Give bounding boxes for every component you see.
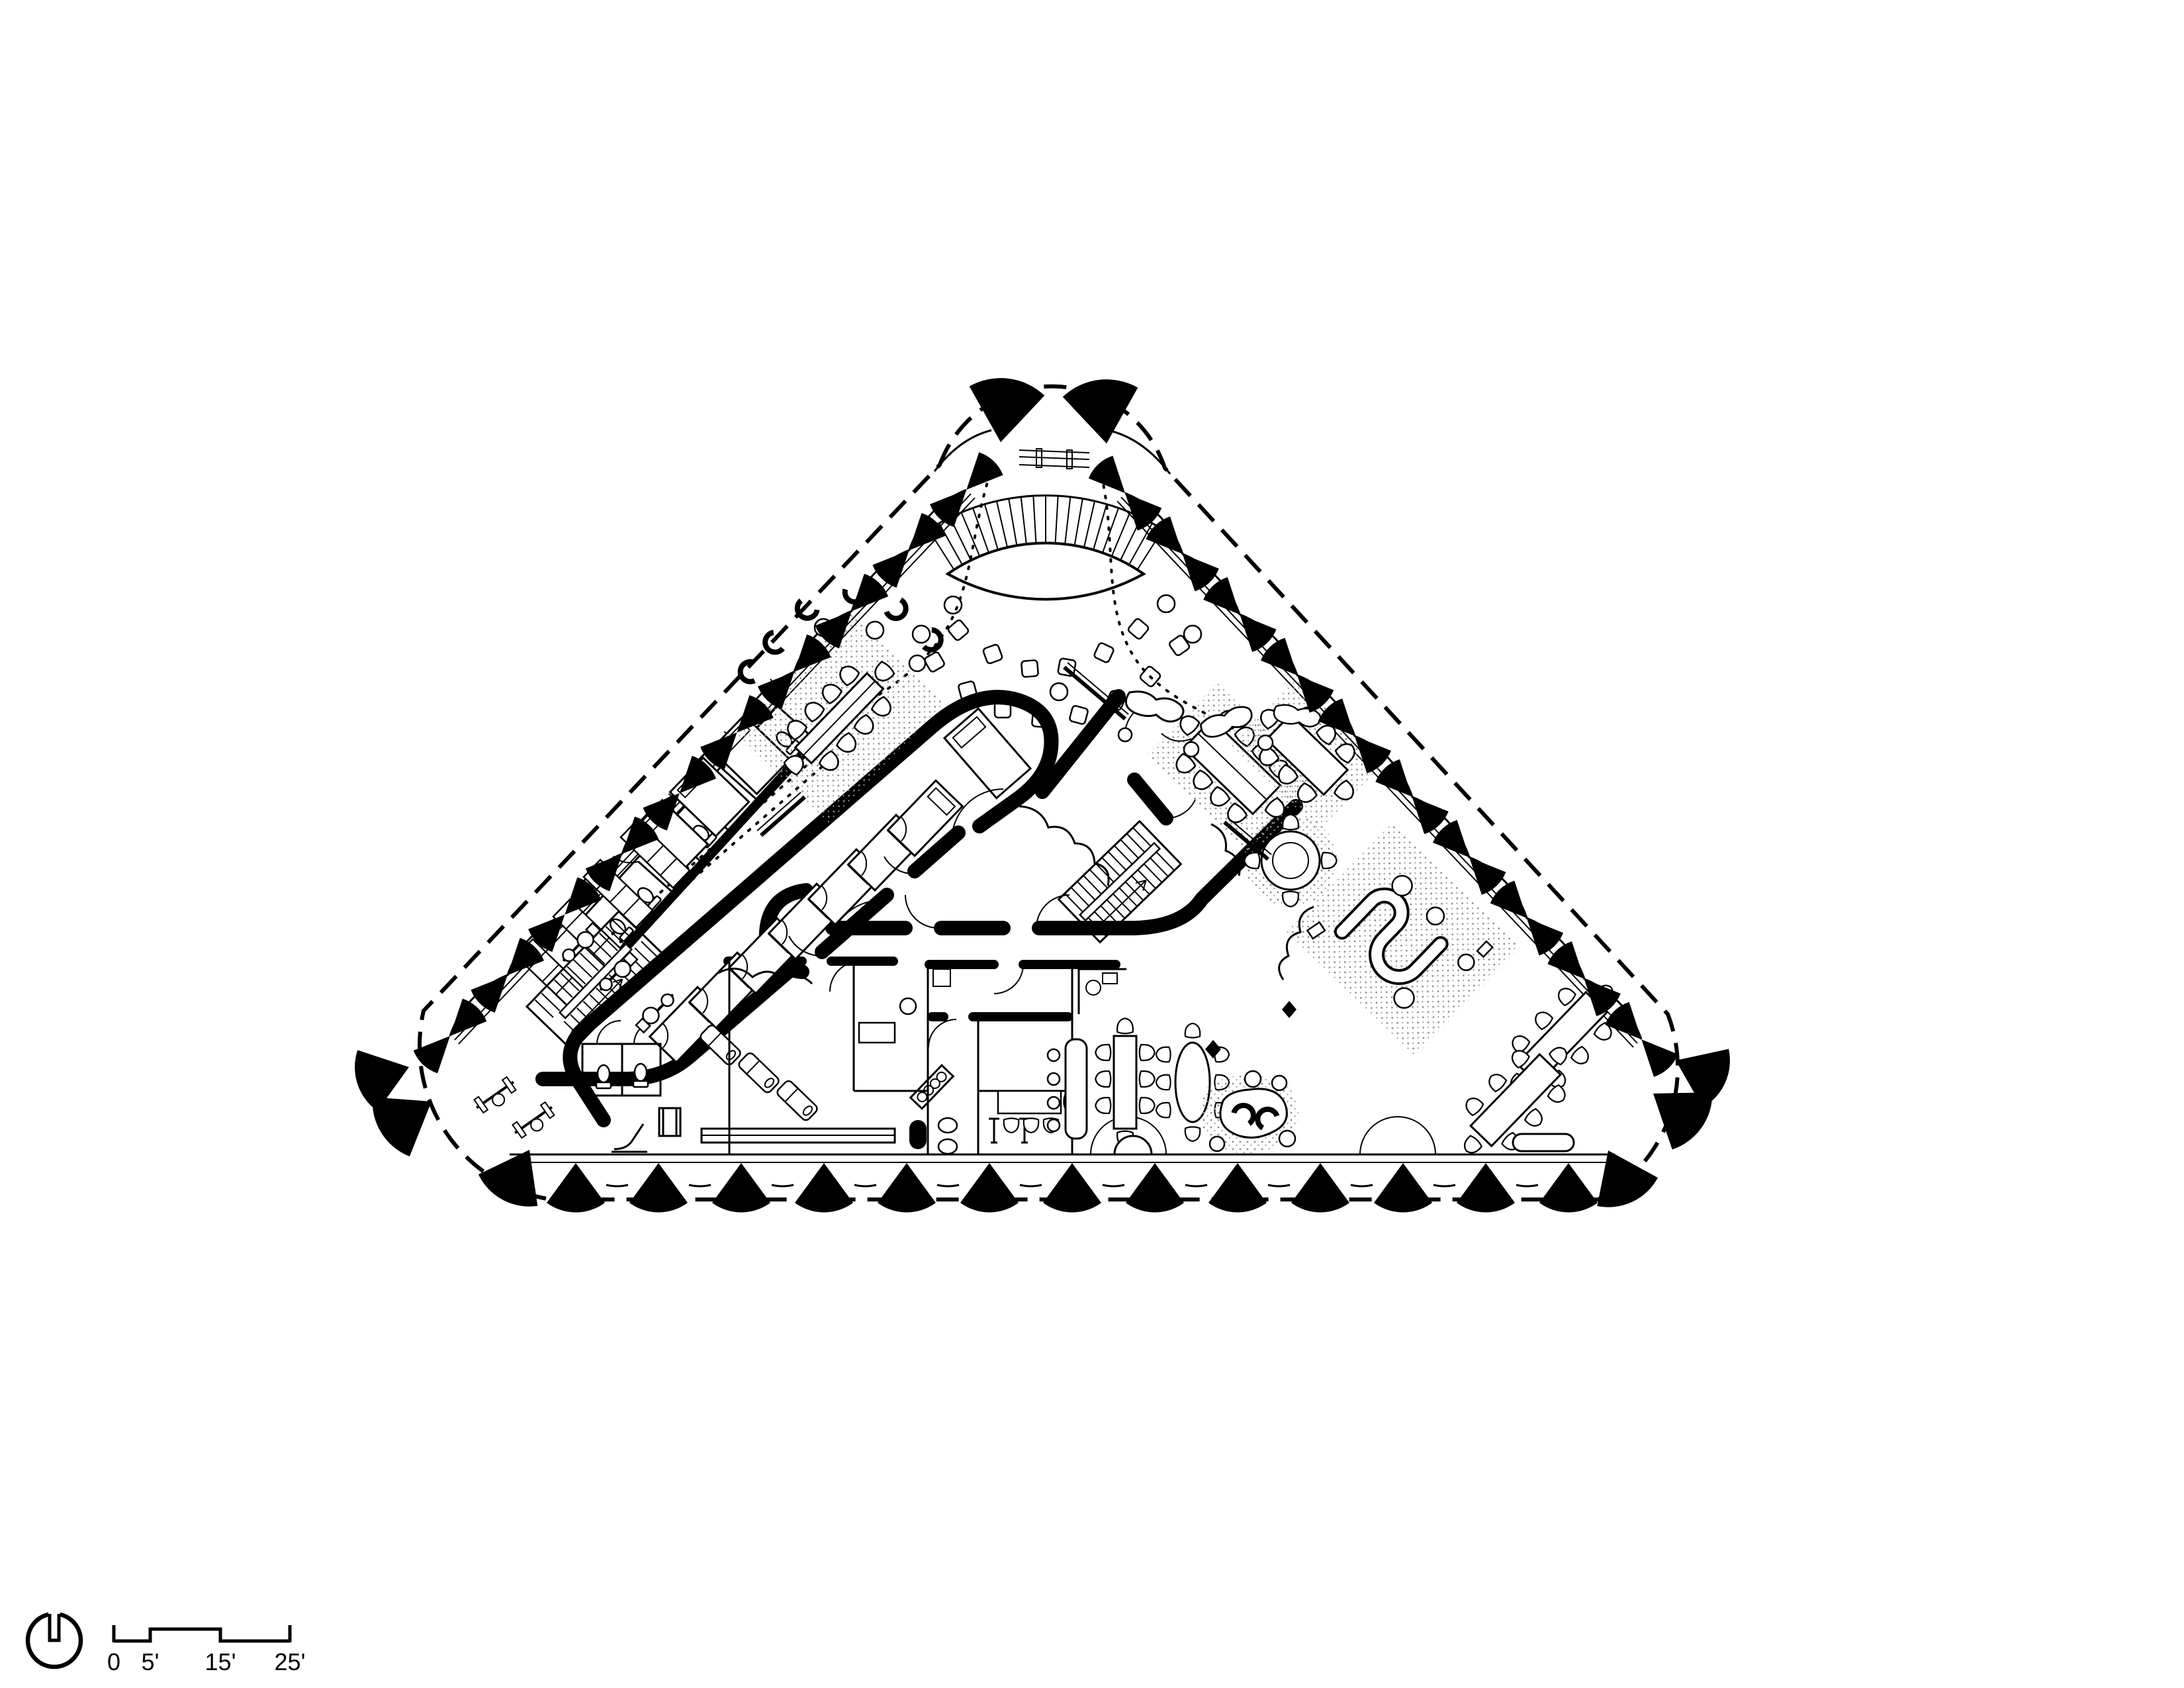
chair — [1140, 1071, 1155, 1087]
drawing-sheet: 0 5' 15' 25' — [0, 0, 2184, 1688]
chair — [1570, 1045, 1592, 1067]
chair — [1140, 1045, 1155, 1060]
bowtie-column — [1201, 575, 1279, 655]
chair — [1024, 1118, 1039, 1133]
bowtie-column — [1602, 1000, 1680, 1080]
fan-column — [1374, 1163, 1432, 1213]
north-arrow — [28, 1609, 81, 1667]
scale-bar-line — [114, 1625, 290, 1642]
pouf — [983, 644, 1003, 665]
scale-label-5: 5' — [142, 1648, 159, 1675]
left-wing — [472, 588, 1030, 1154]
chair — [1463, 1094, 1484, 1116]
chair — [1095, 1098, 1111, 1113]
pouf — [1069, 705, 1088, 724]
pouf — [1158, 595, 1175, 612]
organic-sofa — [1200, 1071, 1298, 1154]
fan-column — [547, 1163, 605, 1213]
chair — [1322, 853, 1337, 868]
bench — [1513, 1134, 1574, 1151]
pouf — [1127, 618, 1150, 640]
fan-column — [629, 1163, 688, 1213]
chair — [1524, 1107, 1545, 1129]
apex-column — [1061, 375, 1144, 448]
fan-column — [1291, 1163, 1349, 1213]
bowtie-column — [1144, 514, 1222, 594]
scale-label-25: 25' — [275, 1648, 306, 1675]
apex-bridge — [1019, 449, 1089, 469]
chair — [1140, 1098, 1155, 1113]
fan-column — [1208, 1163, 1267, 1213]
fan-column — [712, 1163, 770, 1213]
corner-column — [473, 1134, 559, 1215]
pouf — [1021, 660, 1038, 677]
pouf — [947, 619, 970, 641]
black-accent — [1282, 1001, 1297, 1018]
bottom-rooms-dining — [729, 961, 1298, 1154]
scale-bar: 0 5' 15' 25' — [107, 1625, 305, 1675]
chair — [1244, 853, 1259, 868]
bowtie-column — [411, 996, 489, 1076]
scale-label-0: 0 — [107, 1648, 120, 1675]
chair — [1486, 1071, 1508, 1093]
chair — [1156, 1047, 1171, 1062]
chair — [1185, 1127, 1201, 1141]
chair — [1461, 1135, 1482, 1156]
pouf — [1184, 626, 1201, 643]
fan-column — [960, 1163, 1019, 1213]
fan-column — [1126, 1163, 1184, 1213]
floor-plan-drawing: 0 5' 15' 25' — [0, 0, 2184, 1688]
chair — [1532, 1009, 1554, 1031]
apex-entry — [934, 374, 1170, 474]
bowtie-column — [1086, 453, 1164, 533]
bowtie-column — [870, 510, 948, 590]
chair — [1117, 1018, 1133, 1033]
chair — [1004, 1118, 1019, 1133]
fan-column — [1539, 1163, 1598, 1213]
chair — [1185, 1023, 1201, 1038]
dining-table — [1095, 1018, 1154, 1146]
fan-column — [1457, 1163, 1515, 1213]
pouf — [913, 626, 930, 643]
pouf — [1093, 642, 1115, 663]
fan-column — [795, 1163, 853, 1213]
focus-room — [944, 708, 1030, 798]
chair — [1095, 1071, 1111, 1087]
chair — [1283, 814, 1298, 829]
chair — [1547, 1084, 1569, 1105]
chair — [1156, 1103, 1171, 1118]
chair — [1555, 985, 1576, 1007]
kitchen-island — [1066, 1039, 1087, 1139]
chair — [1283, 892, 1298, 907]
pouf — [1050, 683, 1068, 700]
fan-column — [1043, 1163, 1101, 1213]
chair — [1095, 1045, 1111, 1060]
fan-column — [878, 1163, 936, 1213]
chair — [1156, 1075, 1171, 1090]
scale-label-15: 15' — [205, 1648, 236, 1675]
